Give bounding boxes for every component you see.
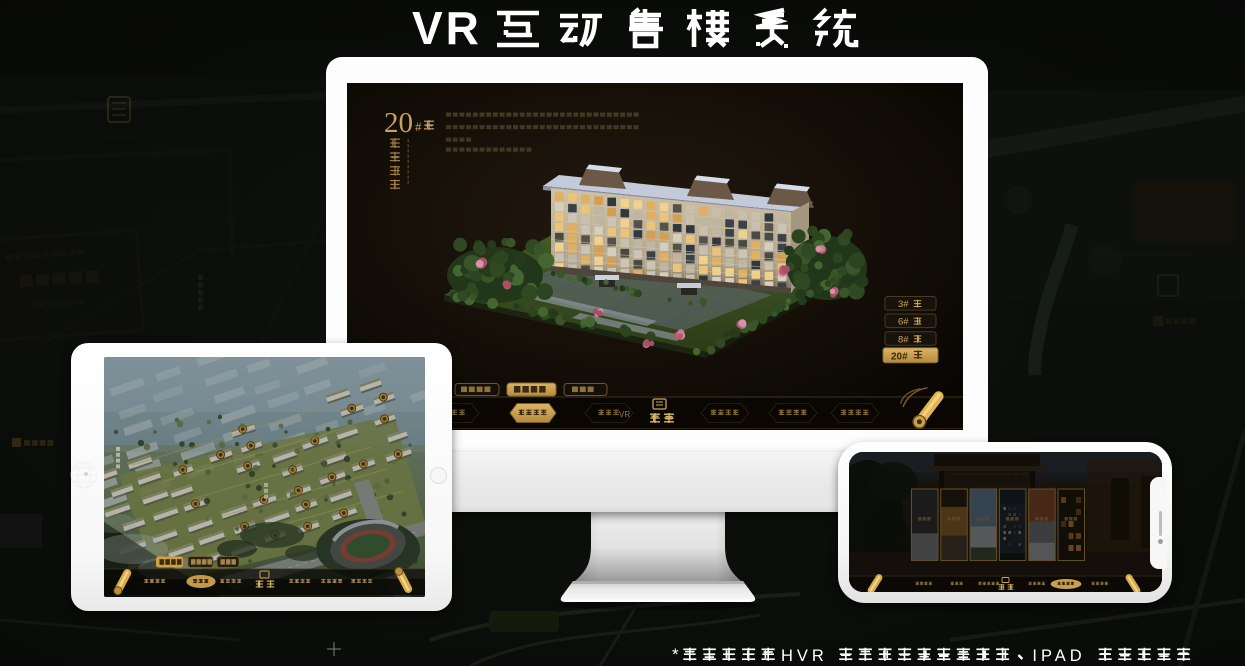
svg-text:20: 20 (384, 107, 413, 139)
svg-text:VR: VR (412, 2, 482, 54)
svg-text:IPAD: IPAD (1032, 647, 1085, 665)
svg-text:6#: 6# (898, 317, 909, 328)
svg-text:3#: 3# (898, 299, 909, 310)
svg-text:*: * (672, 645, 679, 664)
svg-text:HVR: HVR (781, 647, 828, 665)
svg-text:VR: VR (619, 410, 630, 419)
svg-text:20#: 20# (891, 351, 908, 362)
svg-text:8#: 8# (898, 334, 909, 345)
svg-text:#: # (415, 119, 422, 134)
